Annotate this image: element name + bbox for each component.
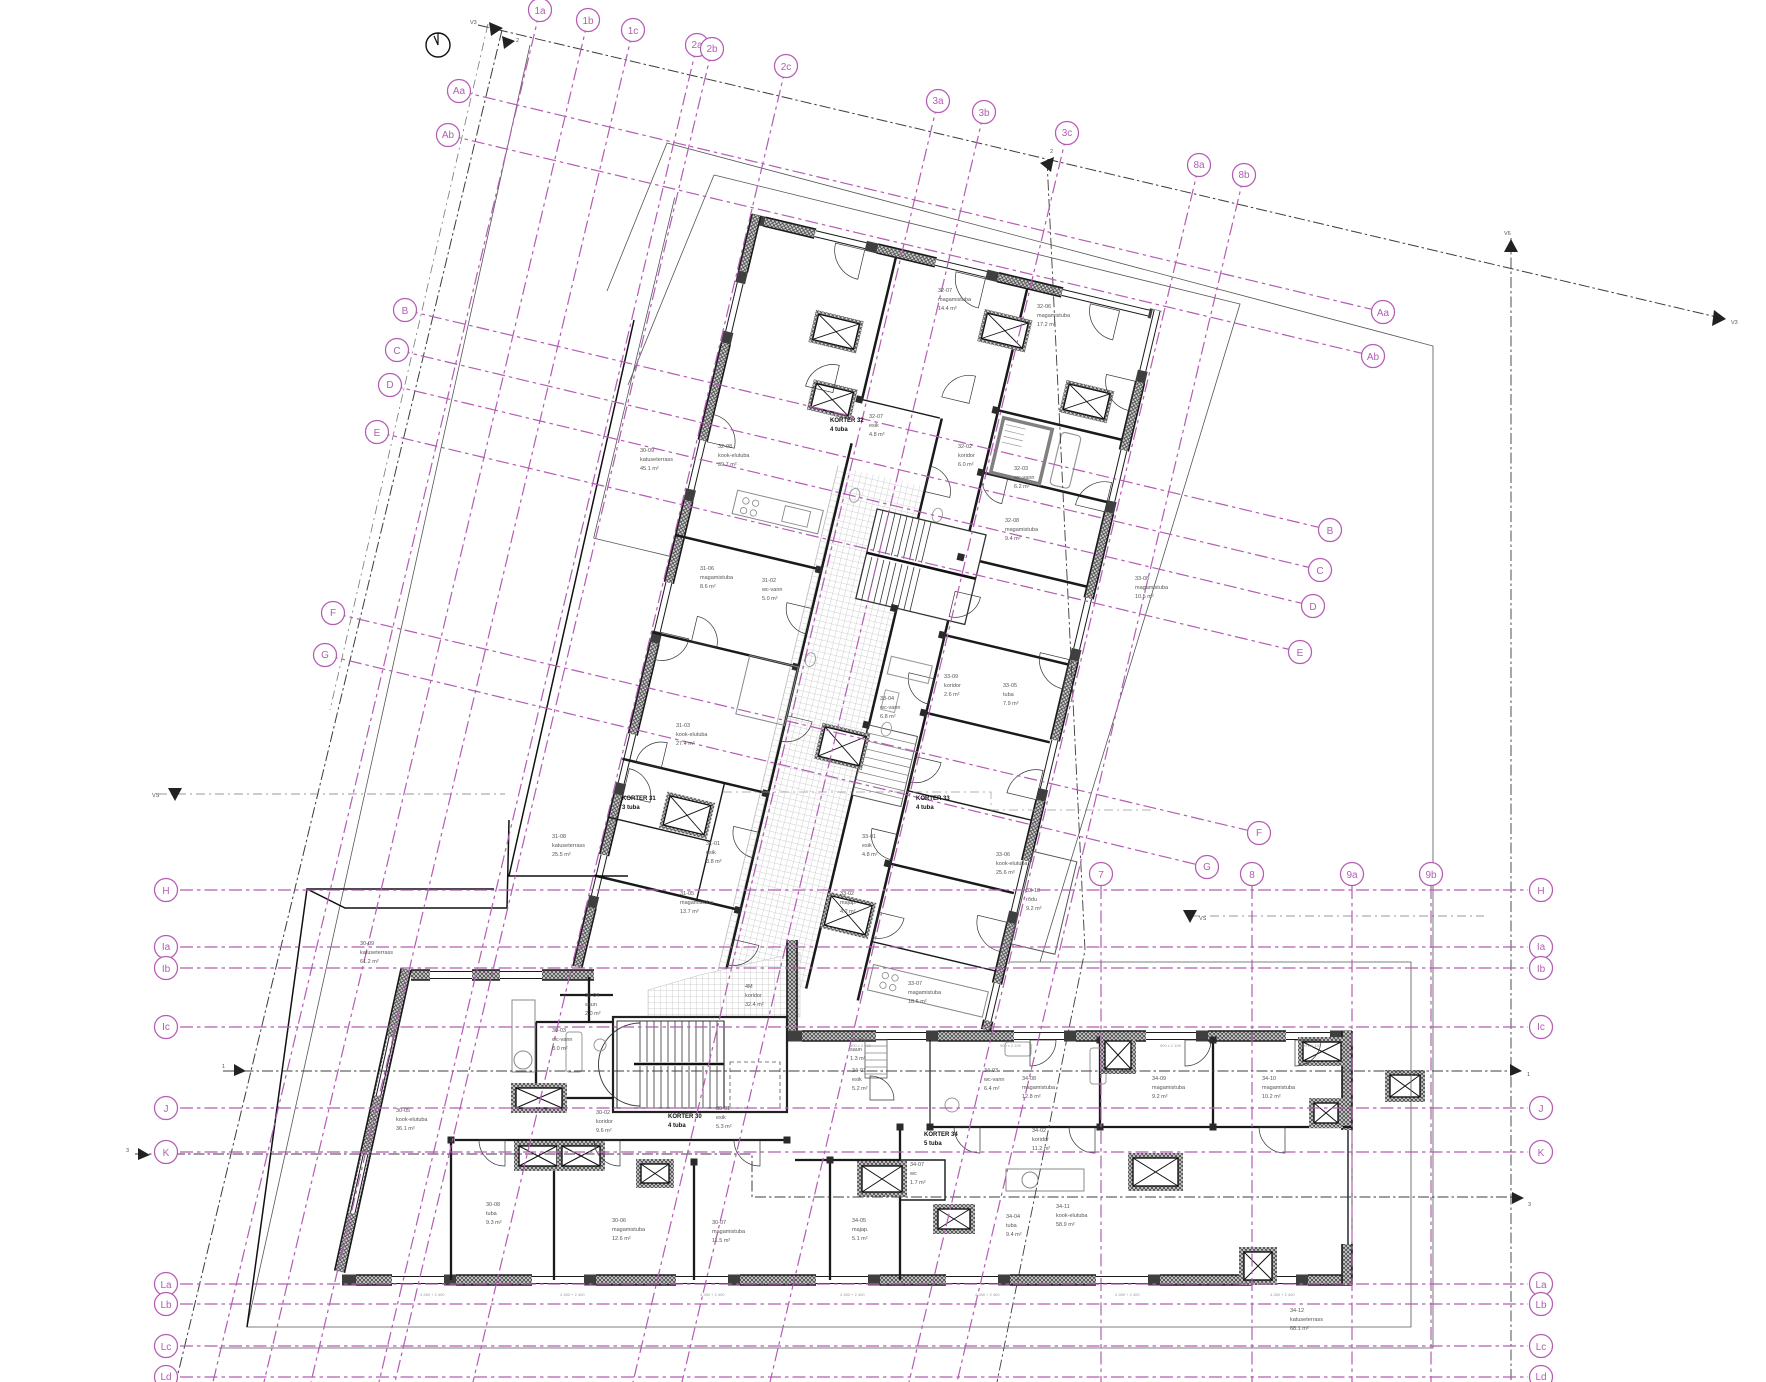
svg-text:3: 3 bbox=[126, 1148, 129, 1154]
svg-text:magamistuba: magamistuba bbox=[1022, 1085, 1056, 1091]
svg-text:32-08: 32-08 bbox=[1005, 518, 1019, 524]
svg-text:2: 2 bbox=[1050, 149, 1053, 155]
svg-text:esik: esik bbox=[716, 1115, 726, 1121]
svg-text:900 x 2 100: 900 x 2 100 bbox=[1160, 1043, 1182, 1048]
svg-text:10.5 m²: 10.5 m² bbox=[1135, 594, 1154, 600]
svg-text:katuseterrass: katuseterrass bbox=[1290, 1317, 1323, 1323]
svg-text:27.4 m²: 27.4 m² bbox=[676, 741, 695, 747]
svg-text:Ia: Ia bbox=[162, 942, 171, 953]
svg-text:2c: 2c bbox=[781, 62, 792, 73]
svg-text:Ab: Ab bbox=[1367, 352, 1380, 363]
svg-text:4 280 + 2 400: 4 280 + 2 400 bbox=[840, 1292, 865, 1297]
svg-text:31-06: 31-06 bbox=[700, 566, 714, 572]
svg-text:Aa: Aa bbox=[1377, 308, 1390, 319]
svg-text:2.6 m²: 2.6 m² bbox=[944, 692, 960, 698]
svg-text:G: G bbox=[321, 650, 329, 661]
svg-text:12.8 m²: 12.8 m² bbox=[1022, 1094, 1041, 1100]
svg-text:12.6 m²: 12.6 m² bbox=[612, 1236, 631, 1242]
svg-text:6.0 m²: 6.0 m² bbox=[958, 462, 974, 468]
svg-text:esik: esik bbox=[852, 1077, 862, 1083]
svg-text:2b: 2b bbox=[706, 44, 718, 55]
svg-text:5 tuba: 5 tuba bbox=[924, 1141, 942, 1147]
svg-text:30-05: 30-05 bbox=[396, 1108, 410, 1114]
svg-text:4 tuba: 4 tuba bbox=[916, 805, 934, 811]
svg-text:30-02: 30-02 bbox=[596, 1110, 610, 1116]
svg-text:30-01: 30-01 bbox=[716, 1106, 730, 1112]
svg-text:61.2 m²: 61.2 m² bbox=[360, 959, 379, 965]
svg-text:H: H bbox=[162, 886, 169, 897]
svg-text:C: C bbox=[1316, 566, 1323, 577]
svg-text:1a: 1a bbox=[534, 6, 546, 17]
svg-text:magamistuba: magamistuba bbox=[680, 900, 714, 906]
svg-text:58.9 m²: 58.9 m² bbox=[1056, 1222, 1075, 1228]
svg-text:30-04: 30-04 bbox=[585, 993, 599, 999]
svg-text:9a: 9a bbox=[1346, 870, 1358, 881]
svg-text:5.0 m²: 5.0 m² bbox=[762, 596, 778, 602]
svg-text:katuseterrass: katuseterrass bbox=[552, 843, 585, 849]
svg-text:32.4 m²: 32.4 m² bbox=[745, 1002, 764, 1008]
svg-text:4.2 m²: 4.2 m² bbox=[840, 909, 856, 915]
svg-text:30-09: 30-09 bbox=[640, 448, 654, 454]
svg-text:magamistuba: magamistuba bbox=[1262, 1085, 1296, 1091]
svg-text:K: K bbox=[163, 1148, 170, 1159]
svg-text:30-09: 30-09 bbox=[360, 941, 374, 947]
svg-text:1: 1 bbox=[222, 1064, 225, 1070]
svg-text:8: 8 bbox=[1249, 870, 1255, 881]
svg-text:saun: saun bbox=[585, 1002, 597, 1008]
svg-text:magamistuba: magamistuba bbox=[1135, 585, 1169, 591]
svg-text:34-10: 34-10 bbox=[1262, 1076, 1276, 1082]
svg-text:9.3 m²: 9.3 m² bbox=[486, 1220, 502, 1226]
svg-text:C: C bbox=[393, 346, 400, 357]
svg-text:900 x 2 100: 900 x 2 100 bbox=[1300, 1043, 1322, 1048]
svg-text:8.0 m²: 8.0 m² bbox=[552, 1046, 568, 1052]
svg-text:31-08: 31-08 bbox=[552, 834, 566, 840]
svg-text:33-09: 33-09 bbox=[944, 674, 958, 680]
svg-text:4M: 4M bbox=[745, 984, 753, 990]
svg-text:31-05: 31-05 bbox=[680, 891, 694, 897]
svg-text:33-04: 33-04 bbox=[880, 696, 894, 702]
svg-text:E: E bbox=[1297, 648, 1304, 659]
svg-text:32-07: 32-07 bbox=[869, 414, 883, 420]
svg-text:36.1 m²: 36.1 m² bbox=[396, 1126, 415, 1132]
svg-text:magamistuba: magamistuba bbox=[612, 1227, 646, 1233]
svg-text:tuba: tuba bbox=[486, 1211, 498, 1217]
svg-text:1.7 m²: 1.7 m² bbox=[910, 1180, 926, 1186]
svg-text:33-06: 33-06 bbox=[996, 852, 1010, 858]
svg-text:8b: 8b bbox=[1238, 170, 1250, 181]
svg-text:4 280 + 2 400: 4 280 + 2 400 bbox=[420, 1292, 445, 1297]
svg-text:4 280 + 2 400: 4 280 + 2 400 bbox=[1115, 1292, 1140, 1297]
svg-text:1c: 1c bbox=[628, 26, 639, 37]
svg-text:tuba: tuba bbox=[1003, 692, 1015, 698]
svg-text:30-06: 30-06 bbox=[612, 1218, 626, 1224]
svg-text:45.1 m²: 45.1 m² bbox=[640, 466, 659, 472]
svg-text:32-03: 32-03 bbox=[1014, 466, 1028, 472]
svg-text:wc-vann: wc-vann bbox=[879, 705, 900, 711]
svg-text:tuba: tuba bbox=[1006, 1223, 1018, 1229]
svg-text:J: J bbox=[1539, 1104, 1544, 1115]
svg-text:koridor: koridor bbox=[596, 1119, 613, 1125]
svg-text:J: J bbox=[164, 1104, 169, 1115]
svg-text:4 280 + 2 400: 4 280 + 2 400 bbox=[975, 1292, 1000, 1297]
svg-text:saun: saun bbox=[850, 1047, 862, 1053]
svg-text:V6: V6 bbox=[1504, 231, 1511, 237]
svg-text:5.3 m²: 5.3 m² bbox=[716, 1124, 732, 1130]
svg-text:7: 7 bbox=[1098, 870, 1104, 881]
svg-text:wc: wc bbox=[909, 1171, 917, 1177]
svg-text:wc-vann: wc-vann bbox=[761, 587, 782, 593]
svg-text:V3: V3 bbox=[1731, 320, 1738, 326]
svg-text:4 280 + 2 400: 4 280 + 2 400 bbox=[560, 1292, 585, 1297]
svg-text:34-04: 34-04 bbox=[1006, 1214, 1020, 1220]
svg-text:Ib: Ib bbox=[1537, 964, 1546, 975]
svg-text:B: B bbox=[402, 306, 409, 317]
svg-text:13.7 m²: 13.7 m² bbox=[680, 909, 699, 915]
svg-text:magamistuba: magamistuba bbox=[1005, 527, 1039, 533]
svg-text:Ab: Ab bbox=[442, 130, 455, 141]
svg-text:3a: 3a bbox=[932, 96, 944, 107]
svg-text:33-05: 33-05 bbox=[1003, 683, 1017, 689]
svg-text:34-01: 34-01 bbox=[852, 1068, 866, 1074]
svg-text:2: 2 bbox=[516, 38, 519, 44]
svg-text:18.6 m²: 18.6 m² bbox=[908, 999, 927, 1005]
svg-text:33-01: 33-01 bbox=[862, 834, 876, 840]
svg-text:3.8 m²: 3.8 m² bbox=[706, 859, 722, 865]
svg-text:wc-vann: wc-vann bbox=[551, 1037, 572, 1043]
svg-text:17.2 m²: 17.2 m² bbox=[1037, 322, 1056, 328]
svg-text:Ld: Ld bbox=[160, 1372, 171, 1382]
svg-text:magamistuba: magamistuba bbox=[712, 1229, 746, 1235]
svg-text:11.5 m²: 11.5 m² bbox=[712, 1238, 730, 1244]
svg-text:39.7 m²: 39.7 m² bbox=[718, 462, 737, 468]
svg-text:koridor: koridor bbox=[745, 993, 762, 999]
svg-text:KORTER 30: KORTER 30 bbox=[668, 1114, 702, 1120]
svg-text:4 tuba: 4 tuba bbox=[830, 427, 848, 433]
svg-text:2.0 m²: 2.0 m² bbox=[585, 1011, 601, 1017]
svg-text:1: 1 bbox=[1527, 1072, 1530, 1078]
svg-text:Aa: Aa bbox=[453, 86, 466, 97]
svg-text:koridor: koridor bbox=[1032, 1137, 1049, 1143]
svg-text:34-07: 34-07 bbox=[910, 1162, 924, 1168]
svg-text:kook-elutuba: kook-elutuba bbox=[676, 732, 708, 738]
svg-text:9.6 m²: 9.6 m² bbox=[596, 1128, 612, 1134]
svg-text:25.5 m²: 25.5 m² bbox=[552, 852, 571, 858]
svg-text:H: H bbox=[1537, 886, 1544, 897]
svg-text:11.2 m²: 11.2 m² bbox=[1032, 1146, 1050, 1152]
svg-text:Lb: Lb bbox=[160, 1300, 172, 1311]
svg-text:kook-elutuba: kook-elutuba bbox=[1056, 1213, 1088, 1219]
svg-text:33-07: 33-07 bbox=[908, 981, 922, 987]
svg-text:E: E bbox=[374, 428, 381, 439]
svg-text:3b: 3b bbox=[978, 108, 990, 119]
svg-text:9.2 m²: 9.2 m² bbox=[1152, 1094, 1168, 1100]
svg-text:La: La bbox=[1535, 1280, 1547, 1291]
svg-text:magamistuba: magamistuba bbox=[938, 297, 972, 303]
svg-text:31-03: 31-03 bbox=[676, 723, 690, 729]
svg-text:Lb: Lb bbox=[1535, 1300, 1547, 1311]
svg-text:KORTER 31: KORTER 31 bbox=[622, 796, 656, 802]
svg-text:VS: VS bbox=[152, 793, 160, 799]
svg-text:32-06: 32-06 bbox=[1037, 304, 1051, 310]
svg-text:32-07: 32-07 bbox=[938, 288, 952, 294]
svg-text:9.4 m²: 9.4 m² bbox=[1005, 536, 1021, 542]
svg-text:9b: 9b bbox=[1425, 870, 1437, 881]
svg-text:majap.: majap. bbox=[840, 900, 857, 906]
svg-text:wc-vann: wc-vann bbox=[983, 1077, 1004, 1083]
svg-text:25.6 m²: 25.6 m² bbox=[996, 870, 1015, 876]
svg-text:33-10: 33-10 bbox=[1026, 888, 1040, 894]
svg-text:magamistuba: magamistuba bbox=[908, 990, 942, 996]
svg-text:B: B bbox=[1327, 526, 1334, 537]
svg-text:katuseterrass: katuseterrass bbox=[640, 457, 673, 463]
svg-text:Ib: Ib bbox=[162, 964, 171, 975]
svg-text:D: D bbox=[1309, 602, 1316, 613]
svg-text:esik: esik bbox=[706, 850, 716, 856]
svg-text:esik: esik bbox=[862, 843, 872, 849]
svg-text:3 tuba: 3 tuba bbox=[622, 805, 640, 811]
svg-text:F: F bbox=[330, 608, 336, 619]
svg-text:Ic: Ic bbox=[1537, 1022, 1545, 1033]
svg-text:magamistuba: magamistuba bbox=[700, 575, 734, 581]
svg-text:4 tuba: 4 tuba bbox=[668, 1123, 686, 1129]
svg-text:4.8 m²: 4.8 m² bbox=[869, 432, 885, 438]
svg-text:6.2 m²: 6.2 m² bbox=[1014, 484, 1030, 490]
svg-text:8.6 m²: 8.6 m² bbox=[700, 584, 716, 590]
svg-text:33-08: 33-08 bbox=[1135, 576, 1149, 582]
svg-text:magamistuba: magamistuba bbox=[1152, 1085, 1186, 1091]
svg-text:KORTER 32: KORTER 32 bbox=[830, 418, 864, 424]
svg-text:koridor: koridor bbox=[958, 453, 975, 459]
svg-text:3c: 3c bbox=[1062, 128, 1073, 139]
svg-text:3: 3 bbox=[1528, 1202, 1531, 1208]
svg-text:8a: 8a bbox=[1193, 160, 1205, 171]
svg-text:magamistuba: magamistuba bbox=[1037, 313, 1071, 319]
svg-text:4 280 + 2 400: 4 280 + 2 400 bbox=[700, 1292, 725, 1297]
svg-text:7.9 m²: 7.9 m² bbox=[1003, 701, 1019, 707]
svg-text:rõdu: rõdu bbox=[1026, 897, 1037, 903]
svg-text:KORTER 33: KORTER 33 bbox=[916, 796, 950, 802]
svg-text:4.8 m²: 4.8 m² bbox=[862, 852, 878, 858]
svg-text:34-08: 34-08 bbox=[1022, 1076, 1036, 1082]
svg-text:34-06: 34-06 bbox=[850, 1038, 864, 1044]
svg-text:32-08: 32-08 bbox=[718, 444, 732, 450]
svg-text:34-02: 34-02 bbox=[1032, 1128, 1046, 1134]
svg-text:1b: 1b bbox=[582, 16, 594, 27]
svg-text:4 280 + 2 400: 4 280 + 2 400 bbox=[1270, 1292, 1295, 1297]
svg-text:30-08: 30-08 bbox=[486, 1202, 500, 1208]
svg-text:10.2 m²: 10.2 m² bbox=[1262, 1094, 1281, 1100]
svg-text:La: La bbox=[160, 1280, 172, 1291]
svg-text:34-12: 34-12 bbox=[1290, 1308, 1304, 1314]
svg-text:34-11: 34-11 bbox=[1056, 1204, 1070, 1210]
svg-text:31-01: 31-01 bbox=[706, 841, 720, 847]
svg-text:G: G bbox=[1203, 862, 1211, 873]
svg-text:68.1 m²: 68.1 m² bbox=[1290, 1326, 1309, 1332]
svg-text:30-03: 30-03 bbox=[552, 1028, 566, 1034]
svg-text:kook-elutuba: kook-elutuba bbox=[396, 1117, 428, 1123]
svg-text:34-05: 34-05 bbox=[852, 1218, 866, 1224]
svg-text:F: F bbox=[1256, 828, 1262, 839]
svg-text:majap.: majap. bbox=[852, 1227, 869, 1233]
svg-text:koridor: koridor bbox=[944, 683, 961, 689]
svg-text:31-02: 31-02 bbox=[762, 578, 776, 584]
svg-text:1.3 m²: 1.3 m² bbox=[850, 1056, 866, 1062]
svg-text:6.4 m²: 6.4 m² bbox=[984, 1086, 1000, 1092]
svg-text:K: K bbox=[1538, 1148, 1545, 1159]
svg-text:5.2 m²: 5.2 m² bbox=[852, 1086, 868, 1092]
svg-text:D: D bbox=[386, 380, 393, 391]
svg-text:KORTER 34: KORTER 34 bbox=[924, 1132, 958, 1138]
svg-text:esik: esik bbox=[869, 423, 879, 429]
svg-text:9.2 m²: 9.2 m² bbox=[1026, 906, 1042, 912]
svg-text:kook-elutuba: kook-elutuba bbox=[718, 453, 750, 459]
svg-text:33-02: 33-02 bbox=[840, 891, 854, 897]
svg-text:Ia: Ia bbox=[1537, 942, 1546, 953]
svg-text:9.4 m²: 9.4 m² bbox=[1006, 1232, 1022, 1238]
svg-text:katuseterrass: katuseterrass bbox=[360, 950, 393, 956]
svg-text:5.1 m²: 5.1 m² bbox=[852, 1236, 868, 1242]
svg-text:900 x 2 100: 900 x 2 100 bbox=[1000, 1043, 1022, 1048]
svg-text:6.8 m²: 6.8 m² bbox=[880, 714, 896, 720]
svg-text:Ld: Ld bbox=[1535, 1372, 1546, 1382]
svg-text:wc-vann: wc-vann bbox=[1013, 475, 1034, 481]
svg-text:kook-elutuba: kook-elutuba bbox=[996, 861, 1028, 867]
svg-text:30-07: 30-07 bbox=[712, 1220, 726, 1226]
svg-text:Ic: Ic bbox=[162, 1022, 170, 1033]
svg-text:VS: VS bbox=[1199, 916, 1207, 922]
svg-text:V3: V3 bbox=[470, 20, 477, 26]
svg-text:Lc: Lc bbox=[161, 1342, 172, 1353]
svg-text:Lc: Lc bbox=[1536, 1342, 1547, 1353]
svg-text:14.4 m²: 14.4 m² bbox=[938, 306, 957, 312]
svg-text:32-02: 32-02 bbox=[958, 444, 972, 450]
svg-text:34-09: 34-09 bbox=[1152, 1076, 1166, 1082]
svg-text:34-03: 34-03 bbox=[984, 1068, 998, 1074]
